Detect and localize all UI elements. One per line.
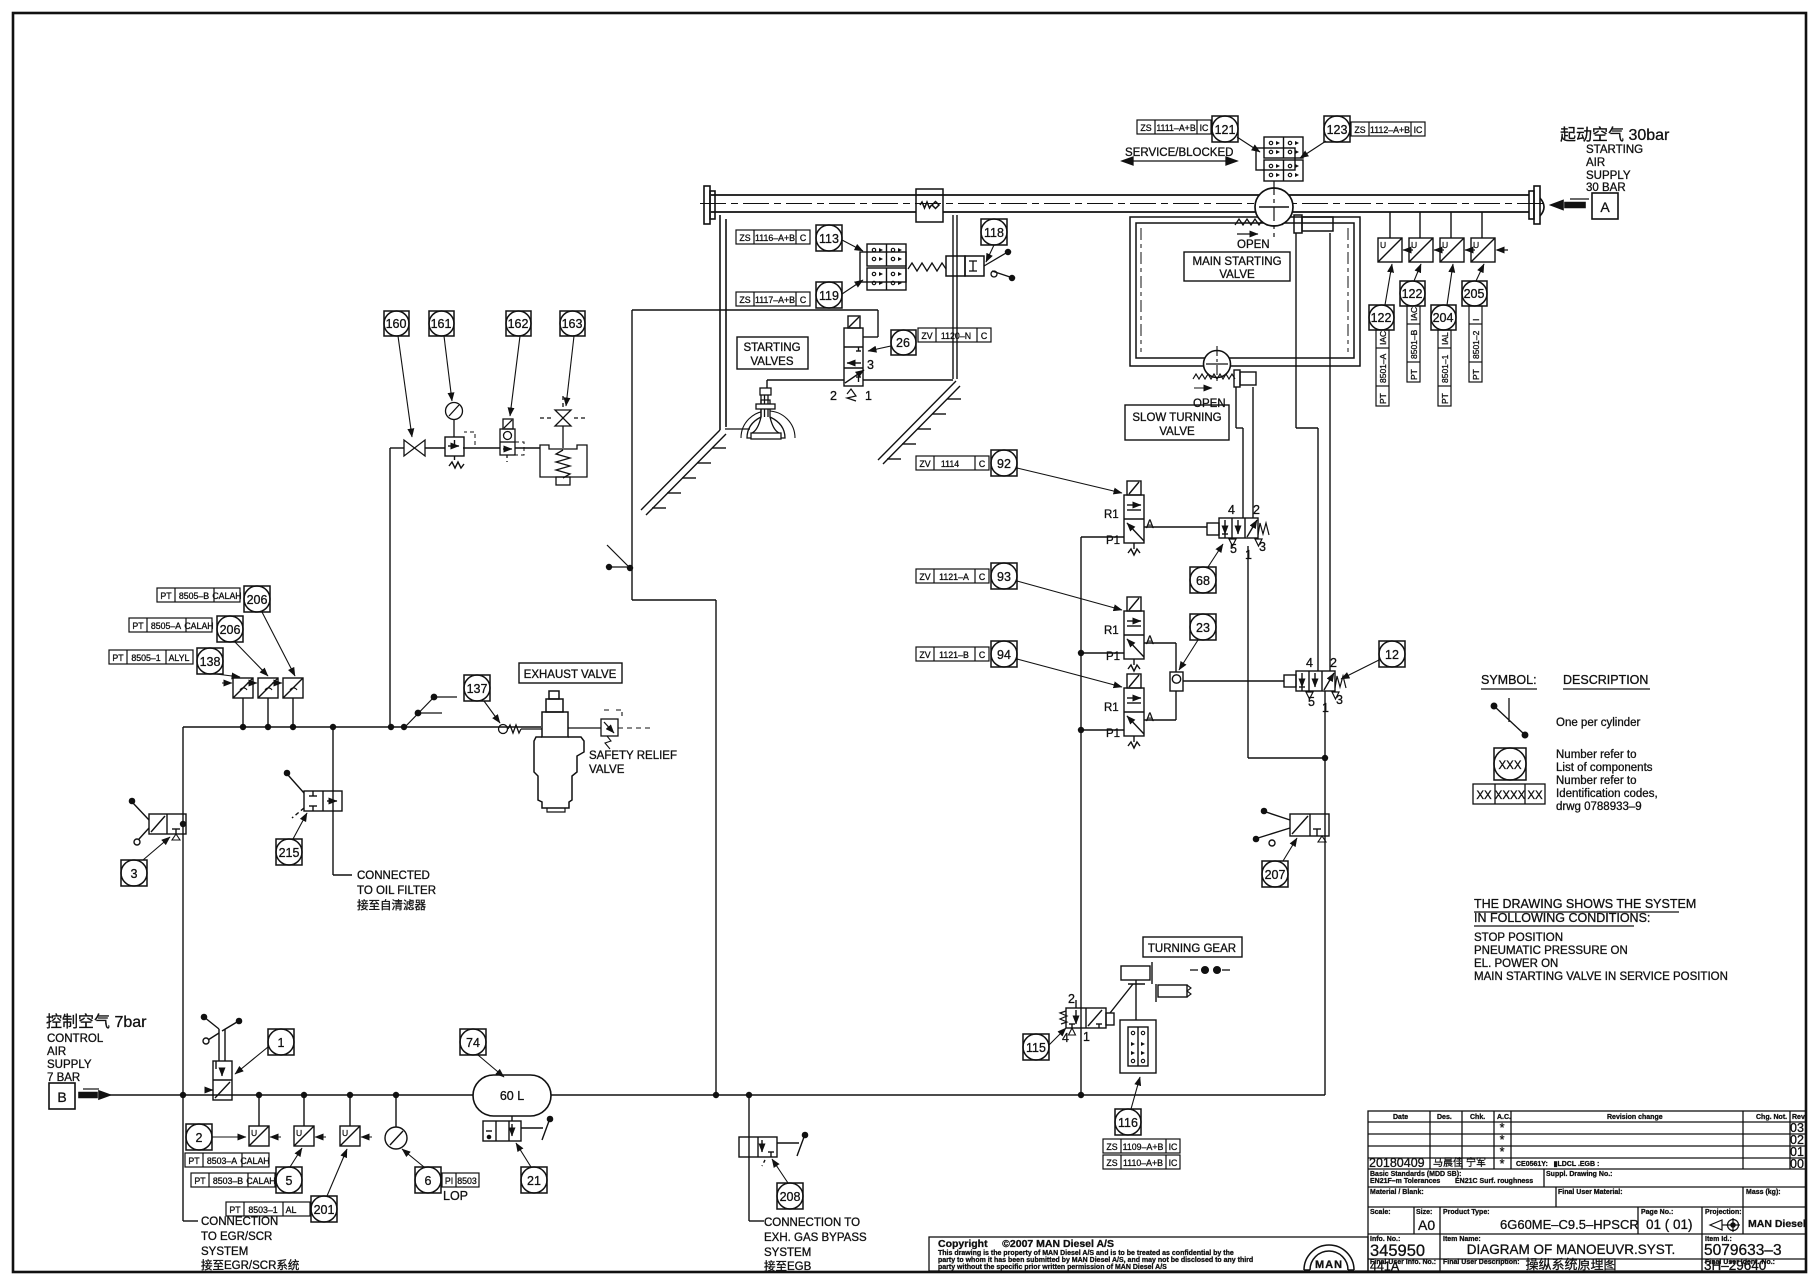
svg-text:SUPPLY: SUPPLY [1586, 170, 1631, 182]
svg-text:PT: PT [188, 1156, 200, 1166]
svg-text:AL: AL [286, 1205, 297, 1215]
svg-text:A0: A0 [1418, 1217, 1435, 1233]
svg-text:PT: PT [160, 591, 172, 601]
svg-text:B: B [57, 1089, 66, 1105]
svg-text:ZV: ZV [919, 572, 930, 582]
svg-text:207: 207 [1265, 868, 1286, 882]
svg-text:116: 116 [1118, 1116, 1138, 1130]
svg-text:1: 1 [1083, 1030, 1090, 1044]
svg-text:1111–A+B: 1111–A+B [1156, 123, 1196, 133]
svg-text:68: 68 [1196, 574, 1210, 588]
svg-text:163: 163 [562, 317, 583, 331]
svg-text:3: 3 [1259, 540, 1266, 554]
svg-text:1120–N: 1120–N [941, 331, 971, 341]
svg-text:30 BAR: 30 BAR [1586, 182, 1626, 194]
svg-text:Product Type:: Product Type: [1443, 1209, 1490, 1216]
svg-text:6: 6 [425, 1174, 432, 1188]
svg-text:SLOW TURNING: SLOW TURNING [1132, 412, 1221, 424]
svg-text:XX: XX [1527, 790, 1543, 802]
svg-text:U: U [1380, 240, 1386, 250]
svg-text:U: U [1411, 240, 1417, 250]
svg-text:宁军: 宁军 [1466, 1156, 1486, 1169]
svg-text:Mass (kg):: Mass (kg): [1746, 1189, 1781, 1196]
svg-text:PT: PT [194, 1176, 206, 1186]
svg-text:8501–A: 8501–A [1378, 353, 1388, 383]
svg-text:C: C [981, 331, 988, 341]
svg-text:00: 00 [1790, 1157, 1804, 1171]
svg-text:8501–2: 8501–2 [1471, 330, 1481, 359]
svg-text:4: 4 [1062, 1031, 1069, 1045]
svg-text:8503: 8503 [457, 1176, 477, 1186]
svg-text:21: 21 [527, 1174, 541, 1188]
svg-text:A: A [1146, 712, 1154, 724]
svg-text:5079633–3: 5079633–3 [1704, 1242, 1782, 1259]
svg-text:20180409: 20180409 [1369, 1156, 1425, 1170]
svg-text:1121–B: 1121–B [939, 650, 969, 660]
svg-text:123: 123 [1327, 123, 1348, 137]
svg-text:IC: IC [1200, 123, 1209, 133]
svg-text:控制空气 7bar: 控制空气 7bar [46, 1013, 147, 1031]
svg-text:ZS: ZS [739, 295, 750, 305]
svg-text:SYSTEM: SYSTEM [201, 1246, 248, 1258]
svg-text:Projection:: Projection: [1705, 1209, 1742, 1216]
svg-text:VALVES: VALVES [750, 356, 793, 368]
svg-text:205: 205 [1464, 287, 1485, 301]
svg-text:113: 113 [819, 232, 839, 246]
svg-text:U: U [296, 1128, 302, 1138]
svg-text:115: 115 [1026, 1041, 1046, 1055]
svg-text:PT: PT [1471, 369, 1481, 380]
svg-text:Material / Blank:: Material / Blank: [1370, 1189, 1424, 1196]
svg-text:R1: R1 [1104, 625, 1119, 637]
svg-text:CONNECTION: CONNECTION [201, 1216, 278, 1228]
svg-text:VALVE: VALVE [1219, 269, 1255, 281]
svg-text:5: 5 [1230, 542, 1237, 556]
svg-text:122: 122 [1402, 287, 1423, 301]
svg-text:I: I [1471, 319, 1481, 321]
svg-text:PT: PT [229, 1205, 241, 1215]
svg-text:208: 208 [780, 1190, 801, 1204]
svg-text:23: 23 [1196, 621, 1210, 635]
svg-text:A: A [1146, 635, 1154, 647]
svg-text:STARTING: STARTING [743, 342, 800, 354]
svg-text:THE DRAWING SHOWS THE SYSTEM: THE DRAWING SHOWS THE SYSTEM [1474, 897, 1696, 911]
svg-text:A: A [1600, 199, 1610, 215]
svg-text:138: 138 [200, 655, 221, 669]
svg-text:Size:: Size: [1416, 1209, 1432, 1216]
svg-text:3: 3 [1336, 693, 1343, 707]
svg-text:A: A [1146, 519, 1154, 531]
svg-text:CONTROL: CONTROL [47, 1033, 104, 1045]
svg-text:LOP: LOP [443, 1189, 468, 1203]
svg-text:AIR: AIR [1586, 157, 1605, 169]
svg-text:2: 2 [196, 1131, 203, 1145]
svg-text:MAN: MAN [1315, 1259, 1343, 1271]
svg-text:ZV: ZV [921, 331, 932, 341]
svg-text:60 L: 60 L [500, 1089, 524, 1103]
svg-text:CALAH: CALAH [184, 621, 213, 631]
svg-text:01 ( 01): 01 ( 01) [1646, 1217, 1693, 1232]
svg-text:1109–A+B: 1109–A+B [1123, 1142, 1164, 1152]
svg-text:U: U [1442, 240, 1448, 250]
svg-text:OPEN: OPEN [1193, 398, 1226, 410]
svg-text:起动空气 30bar: 起动空气 30bar [1560, 126, 1670, 144]
svg-text:TO EGR/SCR: TO EGR/SCR [201, 1231, 272, 1243]
svg-text:马晨佳: 马晨佳 [1433, 1156, 1463, 1169]
svg-text:MAIN STARTING VALVE IN SERVICE: MAIN STARTING VALVE IN SERVICE POSITION [1474, 971, 1728, 983]
svg-text:118: 118 [984, 226, 1004, 240]
svg-text:8505–1: 8505–1 [131, 653, 160, 663]
svg-text:206: 206 [220, 623, 241, 637]
svg-text:26: 26 [896, 336, 910, 350]
svg-text:8503–B: 8503–B [213, 1176, 243, 1186]
svg-text:drwg 0788933–9: drwg 0788933–9 [1556, 801, 1642, 813]
svg-text:1112–A+B: 1112–A+B [1370, 125, 1410, 135]
svg-text:IC: IC [1169, 1158, 1178, 1168]
svg-text:137: 137 [467, 682, 488, 696]
svg-text:1121–A: 1121–A [939, 572, 969, 582]
svg-text:Copyright ©2007 MAN Diesel: Copyright ©2007 MAN Diesel A/S [938, 1238, 1114, 1250]
svg-text:PT: PT [1440, 393, 1450, 404]
svg-text:Chg. Not.: Chg. Not. [1756, 1114, 1787, 1121]
svg-text:PT: PT [1409, 369, 1419, 380]
svg-text:STARTING: STARTING [1586, 144, 1643, 156]
svg-text:IC: IC [1414, 125, 1423, 135]
svg-text:R1: R1 [1104, 702, 1119, 714]
svg-text:Number refer to: Number refer to [1556, 775, 1637, 787]
svg-text:4: 4 [1228, 503, 1235, 517]
svg-text:8501–B: 8501–B [1409, 329, 1419, 359]
svg-text:Revision change: Revision change [1607, 1114, 1663, 1121]
svg-text:215: 215 [279, 846, 300, 860]
svg-text:119: 119 [819, 289, 839, 303]
svg-text:1116–A+B: 1116–A+B [755, 233, 795, 243]
svg-text:IC: IC [1169, 1142, 1178, 1152]
svg-text:VALVE: VALVE [1159, 426, 1195, 438]
svg-text:Suppl. Drawing No.:: Suppl. Drawing No.: [1546, 1171, 1613, 1178]
svg-text:U: U [342, 1128, 348, 1138]
svg-text:TURNING GEAR: TURNING GEAR [1148, 943, 1236, 955]
svg-text:SERVICE/BLOCKED: SERVICE/BLOCKED [1125, 147, 1233, 159]
svg-text:One per cylinder: One per cylinder [1556, 717, 1641, 729]
svg-text:5: 5 [286, 1174, 293, 1188]
svg-text:C: C [800, 295, 807, 305]
svg-text:Final User Description:: Final User Description: [1443, 1259, 1520, 1266]
svg-text:345950: 345950 [1370, 1242, 1425, 1260]
svg-text:7 BAR: 7 BAR [47, 1072, 80, 1084]
svg-text:3: 3 [131, 867, 138, 881]
svg-text:C: C [979, 650, 986, 660]
svg-text:CALAH: CALAH [212, 591, 241, 601]
svg-text:XXX: XXX [1498, 760, 1521, 772]
svg-text:Identification codes,: Identification codes, [1556, 788, 1658, 800]
svg-text:EXH. GAS BYPASS: EXH. GAS BYPASS [764, 1232, 867, 1244]
svg-text:VALVE: VALVE [589, 764, 625, 776]
svg-text:A.C.: A.C. [1497, 1114, 1511, 1121]
svg-text:3: 3 [867, 358, 874, 372]
svg-text:1114: 1114 [941, 459, 959, 469]
svg-text:IAC: IAC [1409, 307, 1419, 321]
svg-text:8505–B: 8505–B [179, 591, 209, 601]
svg-text:201: 201 [314, 1203, 335, 1217]
svg-text:74: 74 [466, 1036, 480, 1050]
svg-text:2: 2 [1068, 992, 1075, 1006]
svg-text:1110–A+B: 1110–A+B [1123, 1158, 1163, 1168]
svg-text:ZV: ZV [919, 650, 930, 660]
svg-text:ZV: ZV [919, 459, 930, 469]
svg-text:C: C [800, 233, 807, 243]
svg-text:EN21C Surf. roughness: EN21C Surf. roughness [1455, 1178, 1533, 1185]
svg-text:CALAH: CALAH [240, 1156, 269, 1166]
svg-text:3H–29640: 3H–29640 [1704, 1258, 1766, 1273]
svg-text:8503–A: 8503–A [207, 1156, 237, 1166]
svg-text:*: * [1500, 1157, 1505, 1171]
svg-text:DESCRIPTION: DESCRIPTION [1563, 673, 1648, 687]
svg-text:party without the specific pri: party without the specific prior written… [938, 1264, 1167, 1271]
svg-text:接至自清滤器: 接至自清滤器 [357, 899, 426, 912]
svg-text:4: 4 [1306, 656, 1313, 670]
svg-text:This drawing is the property o: This drawing is the property of MAN Dies… [938, 1250, 1234, 1257]
svg-text:1117–A+B: 1117–A+B [755, 295, 795, 305]
svg-text:IAL: IAL [1440, 332, 1450, 345]
svg-text:Final User Material:: Final User Material: [1558, 1189, 1623, 1196]
svg-text:R1: R1 [1104, 509, 1119, 521]
svg-text:2: 2 [830, 389, 837, 403]
svg-text:SYMBOL:: SYMBOL: [1481, 673, 1537, 687]
svg-text:ZS: ZS [1354, 125, 1365, 135]
svg-text:204: 204 [1433, 311, 1454, 325]
svg-text:EN21F–m Tolerances: EN21F–m Tolerances [1370, 1178, 1440, 1185]
svg-text:Des.: Des. [1437, 1114, 1452, 1121]
svg-text:接至EGR/SCR系统: 接至EGR/SCR系统 [201, 1259, 300, 1272]
svg-text:206: 206 [247, 593, 268, 607]
svg-text:MAIN STARTING: MAIN STARTING [1192, 256, 1281, 268]
svg-text:93: 93 [997, 570, 1011, 584]
svg-text:162: 162 [508, 317, 529, 331]
svg-text:6G60ME–C9.5–HPSCR: 6G60ME–C9.5–HPSCR [1500, 1217, 1639, 1232]
svg-text:94: 94 [997, 648, 1011, 662]
svg-text:XXXX: XXXX [1495, 790, 1526, 802]
svg-text:CONNECTED: CONNECTED [357, 870, 430, 882]
svg-text:XX: XX [1476, 790, 1492, 802]
svg-text:STOP POSITION: STOP POSITION [1474, 932, 1563, 944]
svg-text:DIAGRAM OF MANOEUVR.SYST.: DIAGRAM OF MANOEUVR.SYST. [1467, 1242, 1676, 1257]
svg-text:Date: Date [1393, 1114, 1408, 1121]
svg-text:ZS: ZS [1140, 123, 1151, 133]
svg-text:EL. POWER ON: EL. POWER ON [1474, 958, 1558, 970]
svg-text:122: 122 [1371, 311, 1392, 325]
svg-text:Chk.: Chk. [1470, 1114, 1485, 1121]
svg-text:PT: PT [112, 653, 124, 663]
svg-text:操纵系统原理图: 操纵系统原理图 [1525, 1257, 1616, 1272]
svg-text:party to whom it has been subm: party to whom it has been submitted by M… [938, 1257, 1253, 1264]
svg-text:IN FOLLOWING CONDITIONS:: IN FOLLOWING CONDITIONS: [1474, 911, 1650, 925]
svg-text:U: U [1473, 240, 1479, 250]
svg-text:接至EGB: 接至EGB [764, 1260, 812, 1273]
svg-text:160: 160 [386, 317, 407, 331]
svg-text:CONNECTION TO: CONNECTION TO [764, 1217, 860, 1229]
svg-text:Rev.: Rev. [1792, 1114, 1806, 1121]
svg-text:Scale:: Scale: [1370, 1209, 1391, 1216]
svg-text:SAFETY RELIEF: SAFETY RELIEF [589, 750, 677, 762]
svg-text:IAC: IAC [1378, 331, 1388, 345]
svg-text:ZS: ZS [1106, 1142, 1117, 1152]
svg-text:5: 5 [1308, 695, 1315, 709]
svg-text:PT: PT [1378, 393, 1388, 404]
svg-text:List of components: List of components [1556, 762, 1653, 774]
svg-text:TO OIL FILTER: TO OIL FILTER [357, 885, 436, 897]
svg-text:PNEUMATIC PRESSURE ON: PNEUMATIC PRESSURE ON [1474, 945, 1628, 957]
svg-text:ZS: ZS [1106, 1158, 1117, 1168]
svg-text:441A: 441A [1370, 1260, 1400, 1274]
svg-text:MAN Diesel: MAN Diesel [1748, 1218, 1806, 1230]
svg-text:121: 121 [1215, 123, 1236, 137]
svg-text:C: C [979, 572, 986, 582]
svg-text:C: C [979, 459, 986, 469]
svg-text:Number refer to: Number refer to [1556, 749, 1637, 761]
svg-text:Basic Standards (MDD SB):: Basic Standards (MDD SB): [1370, 1171, 1461, 1178]
svg-text:AIR: AIR [47, 1046, 66, 1058]
svg-text:SYSTEM: SYSTEM [764, 1247, 811, 1259]
svg-text:8503–1: 8503–1 [248, 1205, 277, 1215]
svg-text:2: 2 [1330, 656, 1337, 670]
svg-text:ALYL: ALYL [169, 653, 190, 663]
svg-text:92: 92 [997, 457, 1011, 471]
svg-text:1: 1 [865, 389, 872, 403]
svg-text:Page No.:: Page No.: [1641, 1209, 1673, 1216]
svg-text:OPEN: OPEN [1237, 239, 1270, 251]
svg-text:PI: PI [445, 1176, 453, 1186]
svg-text:8501–1: 8501–1 [1440, 354, 1450, 383]
svg-text:SUPPLY: SUPPLY [47, 1059, 92, 1071]
svg-text:8505–A: 8505–A [151, 621, 181, 631]
svg-text:1: 1 [278, 1036, 285, 1050]
svg-text:ZS: ZS [739, 233, 750, 243]
svg-text:EXHAUST VALVE: EXHAUST VALVE [524, 669, 617, 681]
svg-text:PT: PT [132, 621, 144, 631]
svg-text:U: U [251, 1128, 257, 1138]
svg-text:2: 2 [1253, 503, 1260, 517]
svg-text:CALAH: CALAH [246, 1176, 275, 1186]
svg-text:161: 161 [431, 317, 452, 331]
svg-text:CE0561Y: ▮LDCL .EGB :: CE0561Y: ▮LDCL .EGB : [1516, 1161, 1599, 1168]
svg-text:12: 12 [1385, 648, 1399, 662]
